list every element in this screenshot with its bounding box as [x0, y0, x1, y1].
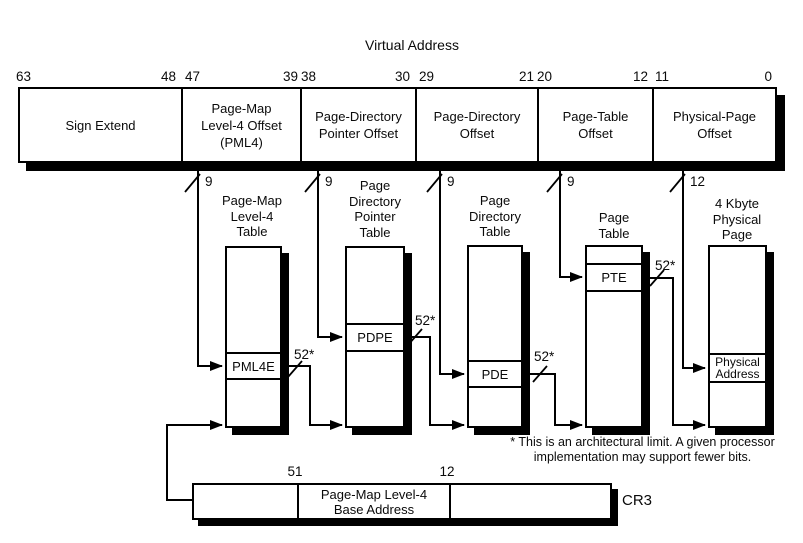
slash-pde-52 [533, 366, 547, 382]
bit-label-38: 38 [301, 69, 316, 84]
pml4-table: PML4E [225, 246, 282, 428]
width-label-offset-12: 12 [690, 174, 705, 189]
width-label-pml4-9: 9 [205, 174, 213, 189]
field-page-directory-offset: Page-Directory Offset [415, 89, 537, 161]
width-label-pdpe-52: 52* [415, 313, 435, 328]
entry-pdpe: PDPE [347, 323, 403, 352]
cr3-field-low [194, 485, 297, 518]
bit-label-39: 39 [273, 69, 298, 84]
cr3-register-box: Page-Map Level-4 Base Address [192, 483, 612, 520]
page-directory-table: PDE [467, 245, 523, 428]
entry-physical-address: Physical Address [710, 353, 765, 383]
width-label-pde-52: 52* [534, 349, 554, 364]
width-label-pd-9: 9 [447, 174, 455, 189]
field-pml4-offset: Page-Map Level-4 Offset (PML4) [181, 89, 300, 161]
title-4kbyte-physical-page: 4 Kbyte Physical Page [682, 196, 792, 243]
physical-page: Physical Address [708, 245, 767, 428]
entry-pml4e: PML4E [227, 352, 280, 380]
slash-offset-12 [670, 174, 685, 192]
width-label-pdp-9: 9 [325, 174, 333, 189]
cr3-field-pml4-base-address: Page-Map Level-4 Base Address [297, 485, 449, 518]
arrow-pml4e-to-pdp-table [284, 366, 342, 425]
slash-pml4-9 [185, 174, 200, 192]
title-page-table: Page Table [562, 210, 666, 241]
cr3-bit-label-51: 51 [280, 464, 310, 479]
virtual-address-title: Virtual Address [312, 37, 512, 53]
field-physical-page-offset: Physical-Page Offset [652, 89, 775, 161]
arrow-pde-to-page-table [525, 374, 582, 425]
cr3-field-high [449, 485, 610, 518]
title-page-directory-pointer-table: Page Directory Pointer Table [320, 178, 430, 240]
field-sign-extend: Sign Extend [20, 89, 181, 161]
width-label-pml4e-52: 52* [294, 347, 314, 362]
width-label-pte-52: 52* [655, 258, 675, 273]
bit-label-12: 12 [623, 69, 648, 84]
field-page-directory-pointer-offset: Page-Directory Pointer Offset [300, 89, 415, 161]
bit-label-63: 63 [16, 69, 31, 84]
arrow-pte-to-physical-page [645, 278, 705, 425]
slash-pdpe-52 [408, 329, 422, 345]
page-directory-pointer-table: PDPE [345, 246, 405, 428]
width-label-pt-9: 9 [567, 174, 575, 189]
slash-pml4e-52 [288, 361, 302, 377]
entry-pte: PTE [587, 263, 641, 292]
architectural-limit-footnote: * This is an architectural limit. A give… [470, 435, 803, 465]
entry-pde: PDE [469, 360, 521, 388]
bit-label-0: 0 [747, 69, 772, 84]
bit-label-11: 11 [655, 69, 669, 84]
page-table: PTE [585, 245, 643, 428]
cr3-register-label: CR3 [622, 492, 652, 509]
arrow-pdpe-to-pd-table [407, 337, 464, 425]
title-page-directory-table: Page Directory Table [440, 193, 550, 240]
bit-label-21: 21 [509, 69, 534, 84]
field-page-table-offset: Page-Table Offset [537, 89, 652, 161]
bit-label-20: 20 [537, 69, 552, 84]
title-pml4-table: Page-Map Level-4 Table [197, 193, 307, 240]
bit-label-48: 48 [151, 69, 176, 84]
slash-pdp-9 [305, 174, 320, 192]
cr3-bit-label-12: 12 [432, 464, 462, 479]
page-translation-diagram: Virtual Address 63 48 47 39 38 30 29 21 … [0, 0, 803, 543]
bit-label-47: 47 [185, 69, 200, 84]
virtual-address-box: Sign Extend Page-Map Level-4 Offset (PML… [18, 87, 777, 163]
bit-label-29: 29 [419, 69, 434, 84]
bit-label-30: 30 [385, 69, 410, 84]
slash-pt-9 [547, 174, 562, 192]
